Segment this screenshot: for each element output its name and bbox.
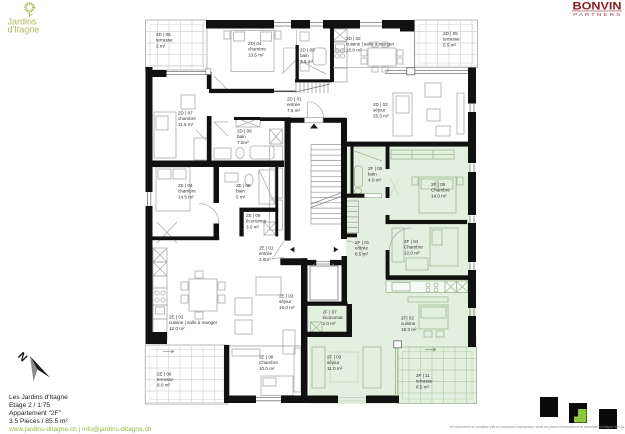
svg-text:www.jardins-ditagne.ch | info@: www.jardins-ditagne.ch | info@jardins-di…: [8, 426, 152, 433]
svg-text:3.5 m²: 3.5 m²: [300, 59, 313, 64]
svg-text:2F | 05: 2F | 05: [431, 182, 446, 187]
svg-text:terrasse: terrasse: [157, 377, 174, 382]
svg-text:bain: bain: [237, 134, 246, 139]
svg-text:Chambre: Chambre: [431, 188, 450, 193]
svg-text:16.0 m²: 16.0 m²: [279, 305, 295, 310]
svg-text:14.0 m²: 14.0 m²: [431, 193, 447, 198]
svg-text:8.5 m²: 8.5 m²: [416, 384, 429, 389]
svg-text:2F | 01: 2F | 01: [355, 240, 370, 245]
svg-text:13.5 m²: 13.5 m²: [248, 52, 264, 57]
svg-text:terrasse: terrasse: [156, 38, 173, 43]
svg-text:chambre: chambre: [248, 47, 266, 52]
svg-text:économat: économat: [323, 315, 344, 320]
svg-text:2E | 03: 2E | 03: [279, 294, 294, 299]
svg-text:bain: bain: [368, 172, 377, 177]
svg-text:cuisine | salle à manger: cuisine | salle à manger: [346, 42, 395, 47]
svg-text:économat: économat: [246, 219, 267, 224]
svg-text:14.5 m²: 14.5 m²: [178, 194, 194, 199]
svg-text:terrasse: terrasse: [416, 379, 433, 384]
svg-text:25.3 m²: 25.3 m²: [373, 113, 389, 118]
svg-text:2.6m²: 2.6m²: [259, 257, 271, 262]
svg-text:2.0 m²: 2.0 m²: [323, 321, 336, 326]
svg-text:entrée: entrée: [259, 251, 272, 256]
svg-text:2D | 07: 2D | 07: [178, 111, 193, 116]
svg-text:chambre: chambre: [178, 189, 196, 194]
svg-text:3.0 m²: 3.0 m²: [246, 224, 259, 229]
svg-text:12.0 m²: 12.0 m²: [169, 326, 185, 331]
svg-text:*ce document ne constitue pas: *ce document ne constitue pas un documen…: [449, 425, 625, 429]
svg-text:2D | 03: 2D | 03: [373, 102, 388, 107]
svg-text:2D | 09: 2D | 09: [300, 48, 315, 53]
svg-text:Appartement "2F": Appartement "2F": [9, 410, 62, 417]
svg-text:séjour: séjour: [279, 299, 292, 304]
svg-text:chambre: chambre: [178, 116, 196, 121]
svg-text:5.5 m²: 5.5 m²: [443, 42, 456, 47]
svg-text:P A R T N E R S: P A R T N E R S: [573, 12, 621, 17]
svg-text:2D | 08: 2D | 08: [237, 129, 252, 134]
svg-text:3.5 Pieces / 85.5 m²: 3.5 Pieces / 85.5 m²: [9, 418, 68, 425]
svg-text:11.0 m²: 11.0 m²: [327, 366, 343, 371]
svg-text:entrée: entrée: [355, 246, 368, 251]
svg-text:2D | 02: 2D | 02: [346, 36, 361, 41]
svg-text:2F | 07: 2F | 07: [323, 310, 338, 315]
svg-text:7.5 m²: 7.5 m²: [287, 108, 300, 113]
svg-text:16.0 m²: 16.0 m²: [346, 47, 362, 52]
svg-text:2E | 06: 2E | 06: [157, 371, 172, 376]
svg-text:bain: bain: [236, 189, 245, 194]
svg-text:2E | 01: 2E | 01: [259, 246, 274, 251]
svg-text:d'Itagne: d'Itagne: [8, 24, 40, 34]
svg-text:2 m²: 2 m²: [156, 43, 166, 48]
svg-text:2D | 01: 2D | 01: [287, 97, 302, 102]
svg-text:2E | 09: 2E | 09: [246, 213, 261, 218]
svg-text:12.0 m²: 12.0 m²: [404, 250, 420, 255]
svg-text:bain: bain: [300, 53, 309, 58]
svg-text:2F | 11: 2F | 11: [416, 373, 430, 378]
svg-text:Les Jardins d'Itagne: Les Jardins d'Itagne: [9, 394, 68, 401]
svg-text:2F | 03: 2F | 03: [327, 355, 342, 360]
svg-text:10.0 m²: 10.0 m²: [259, 366, 275, 371]
svg-text:N: N: [15, 350, 29, 364]
svg-text:séjour: séjour: [373, 108, 386, 113]
svg-text:2F| 02: 2F| 02: [401, 316, 414, 321]
svg-text:2F | 04: 2F | 04: [404, 239, 419, 244]
svg-text:2E | 02: 2E | 02: [169, 315, 184, 320]
svg-text:8.5 m²: 8.5 m²: [355, 251, 368, 256]
svg-text:7.5m²: 7.5m²: [237, 140, 249, 145]
svg-text:Etage 2 / 1:75: Etage 2 / 1:75: [9, 402, 50, 409]
svg-text:terrasse: terrasse: [443, 37, 460, 42]
svg-text:2F | 06: 2F | 06: [368, 166, 383, 171]
svg-text:2D | 06: 2D | 06: [156, 32, 171, 37]
svg-text:8.0 m²: 8.0 m²: [157, 383, 170, 388]
svg-text:2E | 04: 2E | 04: [178, 183, 193, 188]
svg-text:Chambre: Chambre: [259, 360, 278, 365]
svg-text:cuisine | salle à manger: cuisine | salle à manger: [169, 320, 218, 325]
svg-text:cuisine: cuisine: [401, 321, 416, 326]
svg-text:2E | 08: 2E | 08: [259, 355, 274, 360]
svg-text:séjour: séjour: [327, 360, 340, 365]
svg-text:19.3 m²: 19.3 m²: [401, 327, 417, 332]
svg-text:2D| 04: 2D| 04: [248, 41, 262, 46]
svg-text:Chambre: Chambre: [404, 245, 423, 250]
svg-text:11.5 m²: 11.5 m²: [178, 122, 194, 127]
svg-text:4.0 m²: 4.0 m²: [368, 177, 381, 182]
svg-text:entrée: entrée: [287, 102, 300, 107]
svg-text:2E | 05: 2E | 05: [236, 183, 251, 188]
svg-text:5 m²: 5 m²: [236, 194, 246, 199]
svg-text:2D | 05: 2D | 05: [443, 31, 458, 36]
